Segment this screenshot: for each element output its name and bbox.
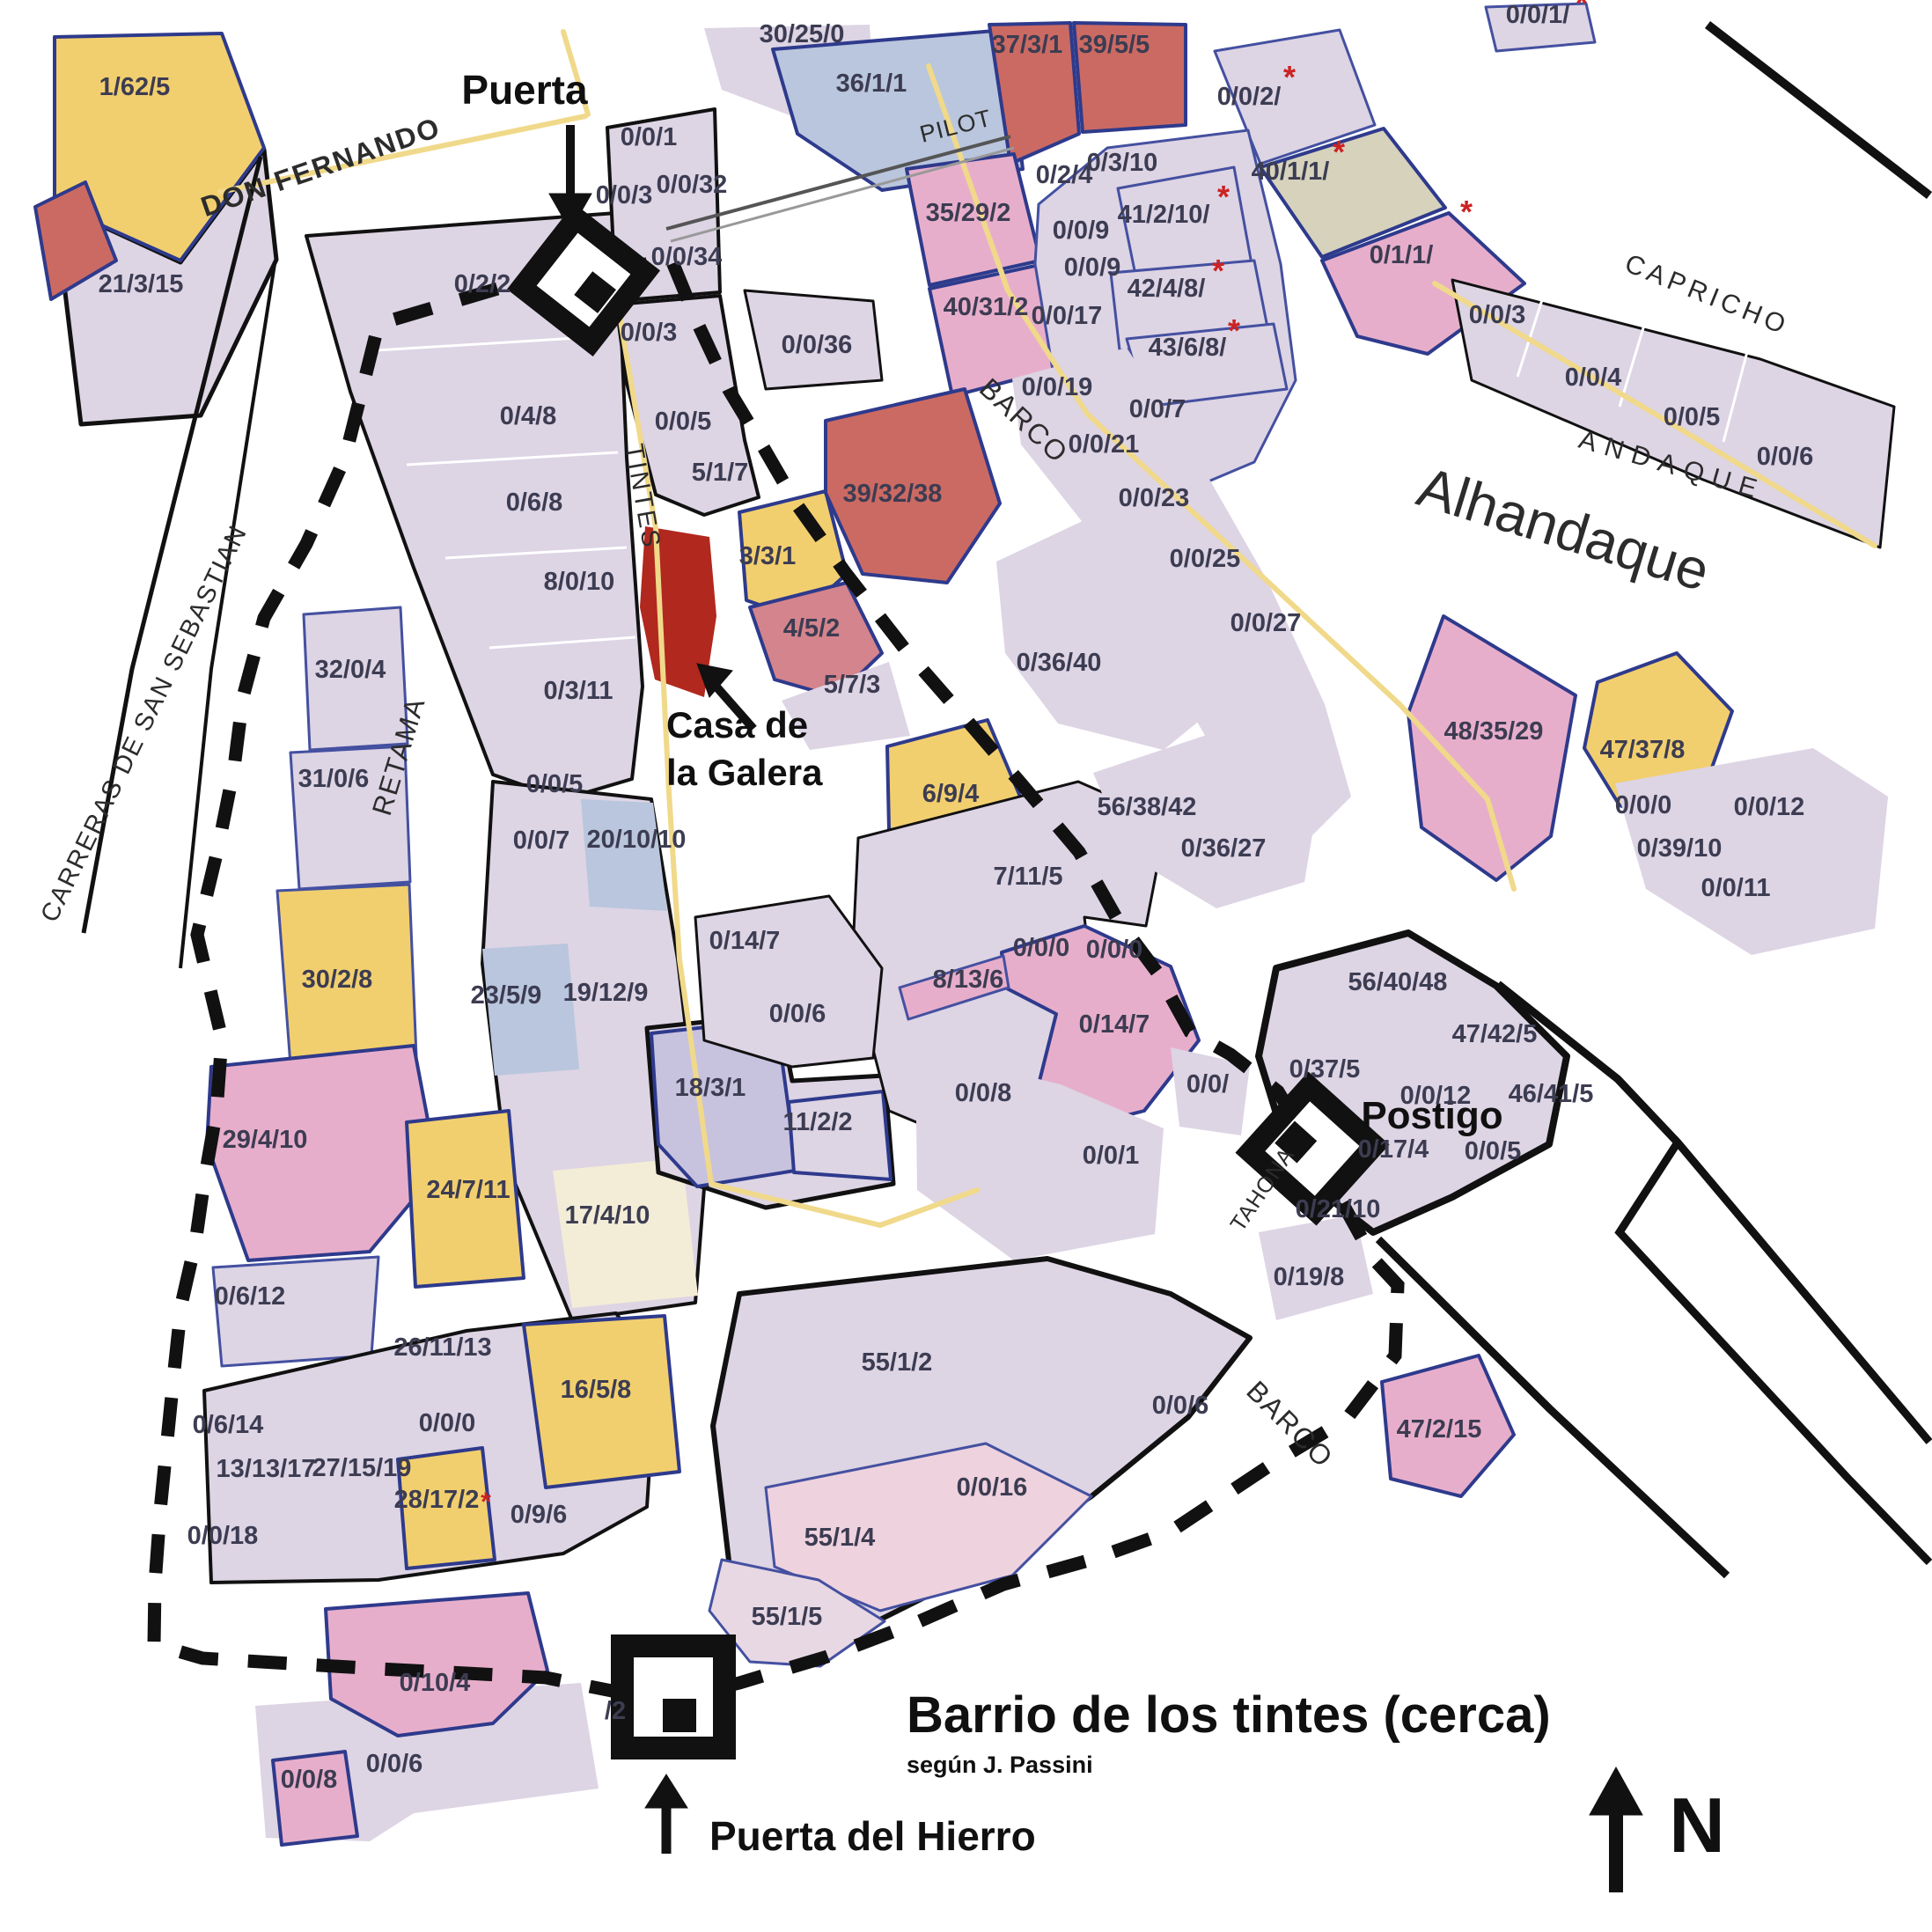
parcel-label: 13/13/17: [217, 1455, 316, 1483]
parcel-label: 0/4/8: [500, 402, 557, 430]
parcel-label: 0/3/10: [1087, 149, 1158, 177]
asterisk: *: [1576, 0, 1588, 21]
parcel-label: 40/1/1/: [1252, 158, 1330, 186]
parcel-label: 0/6/14: [193, 1411, 264, 1439]
parcel-label: 3/3/1: [739, 542, 797, 570]
parcel-label: 0/0/1: [1083, 1142, 1140, 1170]
asterisk: *: [1212, 253, 1224, 289]
parcel-label: 0/0/6: [1757, 443, 1814, 471]
parcel-label: 39/32/38: [843, 480, 943, 508]
parcel-label: 0/0/36: [782, 331, 853, 359]
parcel-label: 0/0/11: [1701, 874, 1770, 902]
parcel-label: 32/0/4: [315, 656, 386, 684]
parcel-label: 23/5/9: [471, 981, 542, 1010]
parcel-label: 1/62/5: [99, 73, 171, 101]
parcel-label: 11/2/2: [782, 1108, 852, 1136]
puerta-del-hierro-label: Puerta del Hierro: [709, 1813, 1036, 1859]
parcel-label: 0/0/3: [621, 319, 678, 347]
parcel-label: 47/37/8: [1600, 736, 1686, 764]
parcel-label: 55/1/2: [862, 1348, 933, 1377]
parcel-label: 19/12/9: [563, 979, 649, 1007]
parcel-label: 35/29/2: [926, 199, 1011, 227]
asterisk: *: [1460, 194, 1473, 230]
parcel-label: 56/40/48: [1348, 968, 1448, 996]
parcel-label: 40/31/2: [944, 293, 1029, 321]
asterisk: *: [1283, 59, 1296, 95]
casa-galera-label-line1: Casa de: [666, 704, 808, 746]
parcel-label: 21/3/15: [99, 270, 184, 298]
parcel-label: 30/2/8: [302, 966, 373, 994]
parcel-label: 0/0/19: [1022, 373, 1093, 401]
parcel-label: 46/41/5: [1509, 1080, 1594, 1108]
parcel-label: 0/39/10: [1637, 834, 1723, 863]
parcel-label: 0/0/5: [655, 408, 712, 436]
parcel-label: 24/7/11: [426, 1176, 510, 1204]
parcel-label: 41/2/10/: [1118, 201, 1210, 229]
parcel-label: 0/0/7: [1129, 395, 1186, 423]
parcel-label: 0/14/7: [1079, 1010, 1150, 1039]
parcel-label: 30/25/0: [760, 20, 845, 48]
parcel-label: 0/1/1/: [1370, 241, 1434, 269]
parcel-label: 5/1/7: [692, 459, 749, 487]
parcel-label: 55/1/4: [804, 1524, 876, 1552]
asterisk: *: [481, 1488, 491, 1517]
barrio-tintes-map: PuertaPostigoPuerta del HierroCasa dela …: [0, 0, 1932, 1932]
parcel-label: 0/0/0: [1086, 936, 1143, 964]
parcel-label: 0/0/: [1186, 1070, 1229, 1098]
map-title: Barrio de los tintes (cerca): [907, 1686, 1551, 1744]
parcel-label: 0/2/4: [1036, 161, 1093, 189]
parcel-label: 18/3/1: [675, 1074, 746, 1102]
parcel-label: 0/0/27: [1230, 609, 1302, 637]
parcel-label: 0/0/0: [1013, 934, 1070, 962]
parcel-label: 0/0/16: [957, 1473, 1028, 1502]
parcel-label: 0/0/5: [1465, 1137, 1522, 1165]
asterisk: *: [1333, 134, 1345, 170]
parcel-label: 0/10/4: [400, 1669, 471, 1697]
parcel-label: 7/11/5: [993, 863, 1062, 891]
parcel-label: 0/9/6: [511, 1501, 568, 1529]
parcel-label: 0/6/8: [506, 489, 563, 517]
parcel-label: 0/0/9: [1053, 217, 1110, 245]
parcel-label: 47/42/5: [1452, 1020, 1538, 1048]
parcel-label: 31/0/6: [298, 765, 370, 793]
parcel-label: 17/4/10: [565, 1201, 650, 1230]
parcel-label: 26/11/13: [393, 1333, 491, 1362]
parcel-label: 0/0/1/: [1506, 1, 1570, 29]
puerta-del-hierro-gate-icon: [622, 1646, 724, 1748]
parcel-label: 0/0/3: [1469, 301, 1526, 329]
parcel-label: 0/0/4: [1565, 364, 1622, 392]
parcel-label: /2: [605, 1697, 626, 1725]
parcel-label: 0/0/25: [1170, 545, 1241, 573]
parcel-label: 39/5/5: [1079, 31, 1150, 59]
parcel-23-5-9: [482, 944, 579, 1076]
parcel-label: 0/0/8: [281, 1766, 338, 1794]
parcel-label: 0/0/6: [1152, 1392, 1209, 1420]
asterisk: *: [1228, 312, 1240, 349]
parcel-label: 16/5/8: [561, 1376, 632, 1404]
parcel-label: 0/19/8: [1274, 1263, 1345, 1291]
parcel-17-4-10: [553, 1158, 698, 1308]
parcel-20-10-10: [581, 799, 667, 911]
parcel-label: 47/2/15: [1397, 1415, 1482, 1443]
parcel-label: 0/17/4: [1358, 1135, 1429, 1164]
parcel-label: 0/36/27: [1181, 834, 1267, 863]
parcel-label: 0/0/12: [1734, 793, 1805, 821]
parcel-0-6-12: [213, 1257, 378, 1366]
parcel-label: 0/0/8: [955, 1079, 1012, 1107]
parcel-label: 0/0/5: [1664, 403, 1721, 431]
casa-galera-label-line2: la Galera: [666, 752, 823, 793]
parcel-label: 6/9/4: [922, 780, 980, 808]
parcel-label: 29/4/10: [223, 1126, 308, 1154]
parcel-label: 0/0/0: [1615, 791, 1672, 819]
map-page: Barrio de los tintes (cerca): [0, 0, 1932, 1932]
parcel-label: 0/0/6: [769, 1000, 826, 1028]
puerta-label: Puerta: [461, 67, 588, 113]
parcel-label: 42/4/8/: [1128, 275, 1206, 303]
parcel-label: 55/1/5: [752, 1603, 823, 1631]
parcel-label: 0/0/5: [526, 770, 584, 798]
parcel-label: 37/3/1: [992, 31, 1063, 59]
parcel-label: 56/38/42: [1098, 793, 1197, 821]
parcel-label: 0/0/9: [1064, 253, 1121, 282]
parcel-label: 0/3/11: [543, 677, 613, 705]
parcel-label: 0/0/6: [366, 1750, 423, 1778]
parcel-label: 36/1/1: [836, 70, 907, 98]
parcel-label: 20/10/10: [587, 826, 687, 854]
parcel-label: 0/0/34: [651, 243, 723, 271]
parcel-label: 0/14/7: [709, 927, 781, 955]
parcel-label: 0/0/17: [1032, 302, 1103, 330]
parcel-label: 0/0/2/: [1217, 83, 1282, 111]
parcel-label: 0/2/2: [454, 270, 511, 298]
parcel-label: 0/0/12: [1400, 1082, 1472, 1110]
asterisk: *: [1217, 179, 1230, 215]
parcel-label: 0/0/7: [513, 826, 570, 855]
parcel-label: 0/0/21: [1069, 430, 1140, 459]
parcel-label: 5/7/3: [824, 671, 881, 699]
north-letter: N: [1669, 1781, 1725, 1869]
parcel-label: 28/17/2: [394, 1486, 480, 1514]
map-subtitle: según J. Passini: [907, 1752, 1093, 1778]
parcel-label: 0/0/1: [621, 123, 678, 151]
parcel-label: 0/0/3: [596, 181, 653, 209]
parcel-label: 0/21/10: [1296, 1195, 1381, 1223]
parcel-label: 43/6/8/: [1149, 334, 1227, 362]
parcel-label: 8/0/10: [544, 568, 615, 596]
parcel-label: 4/5/2: [783, 614, 841, 643]
parcel-label: 48/35/29: [1444, 717, 1544, 746]
parcel-label: 0/0/0: [419, 1409, 476, 1437]
parcel-label: 0/0/23: [1119, 484, 1190, 512]
parcel-label: 0/36/40: [1017, 649, 1102, 677]
parcel-label: 0/0/32: [657, 171, 728, 199]
parcel-label: 27/15/19: [312, 1454, 412, 1482]
parcel-label: 0/0/18: [187, 1522, 259, 1550]
parcel-label: 0/6/12: [215, 1282, 286, 1311]
parcel-label: 0/37/5: [1289, 1055, 1361, 1084]
parcel-label: 8/13/6: [933, 966, 1004, 994]
